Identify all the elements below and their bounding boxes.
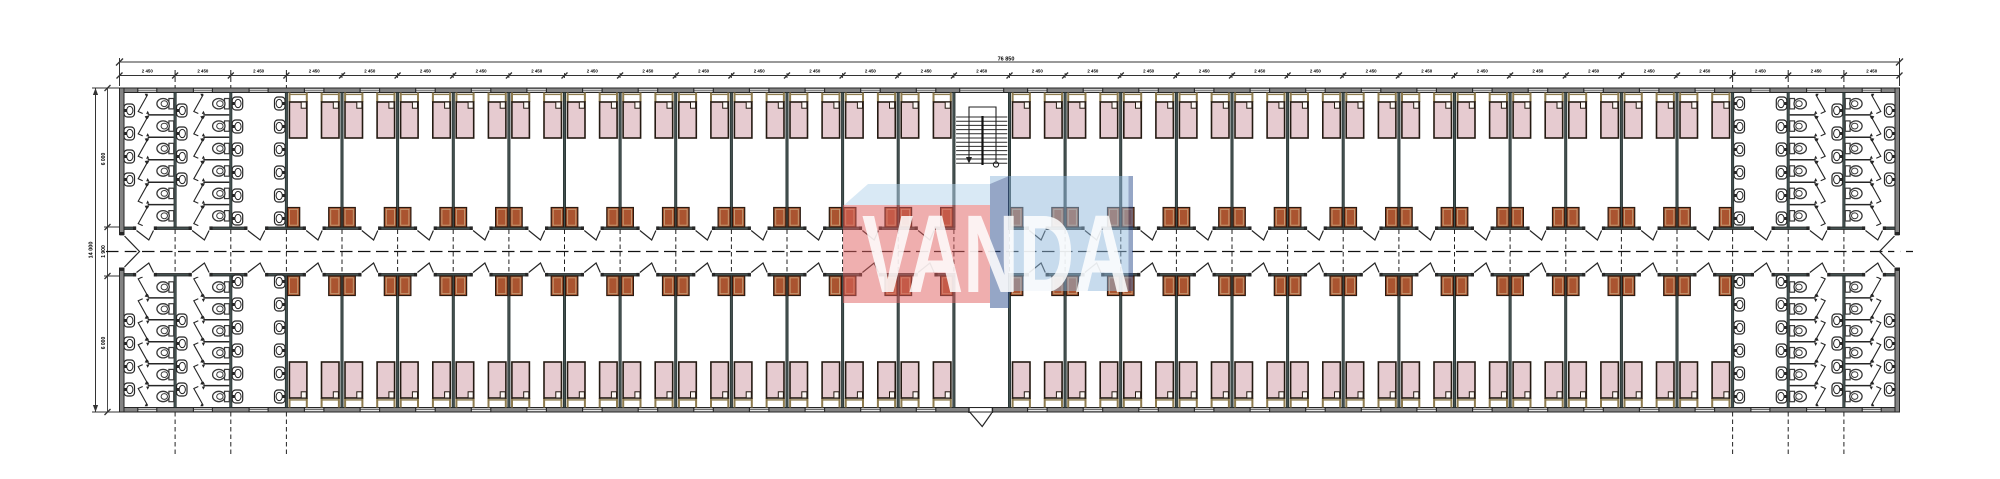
svg-text:2 450: 2 450 xyxy=(698,69,710,74)
svg-text:2 450: 2 450 xyxy=(1087,69,1099,74)
svg-text:2 450: 2 450 xyxy=(142,69,154,74)
svg-text:2 450: 2 450 xyxy=(197,69,209,74)
svg-text:6 000: 6 000 xyxy=(101,337,107,350)
svg-text:2 450: 2 450 xyxy=(1143,69,1155,74)
svg-text:76 850: 76 850 xyxy=(998,56,1015,62)
svg-text:2 450: 2 450 xyxy=(1699,69,1711,74)
svg-text:2 450: 2 450 xyxy=(1866,69,1878,74)
svg-text:2 450: 2 450 xyxy=(420,69,432,74)
svg-text:2 450: 2 450 xyxy=(809,69,821,74)
svg-text:2 450: 2 450 xyxy=(531,69,543,74)
svg-text:2 450: 2 450 xyxy=(1199,69,1211,74)
svg-text:2 450: 2 450 xyxy=(587,69,599,74)
svg-text:2 450: 2 450 xyxy=(1310,69,1322,74)
svg-text:VANDA: VANDA xyxy=(862,193,1130,316)
svg-text:2 450: 2 450 xyxy=(1254,69,1266,74)
svg-text:2 450: 2 450 xyxy=(1755,69,1767,74)
svg-text:2 450: 2 450 xyxy=(1644,69,1656,74)
svg-text:2 450: 2 450 xyxy=(1477,69,1489,74)
svg-text:2 450: 2 450 xyxy=(754,69,766,74)
svg-text:2 450: 2 450 xyxy=(364,69,376,74)
svg-text:2 450: 2 450 xyxy=(1421,69,1433,74)
svg-text:2 450: 2 450 xyxy=(476,69,488,74)
svg-text:2 450: 2 450 xyxy=(921,69,933,74)
svg-text:2 450: 2 450 xyxy=(1811,69,1823,74)
svg-text:2 450: 2 450 xyxy=(1532,69,1544,74)
svg-text:6 000: 6 000 xyxy=(101,153,107,166)
svg-text:2 450: 2 450 xyxy=(1032,69,1044,74)
svg-text:14 000: 14 000 xyxy=(89,242,95,259)
svg-text:2 450: 2 450 xyxy=(1366,69,1378,74)
svg-text:2 450: 2 450 xyxy=(1588,69,1600,74)
svg-text:2 450: 2 450 xyxy=(642,69,654,74)
svg-text:2 450: 2 450 xyxy=(253,69,265,74)
svg-text:2 450: 2 450 xyxy=(865,69,877,74)
svg-text:2 450: 2 450 xyxy=(309,69,321,74)
svg-text:2 450: 2 450 xyxy=(976,69,988,74)
